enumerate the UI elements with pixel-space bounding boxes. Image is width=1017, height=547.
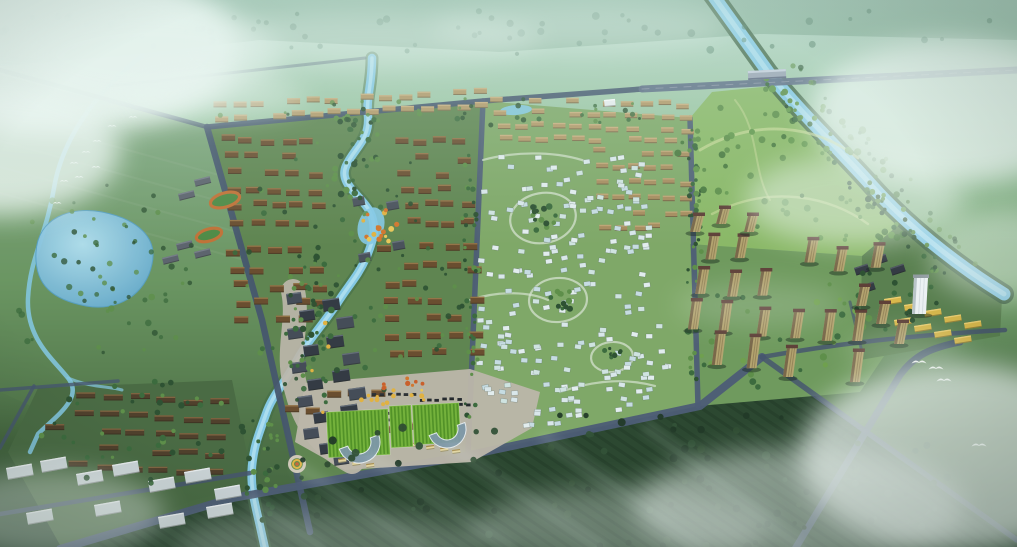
aerial-rendering-stage (0, 0, 1017, 547)
aerial-rendering-scene (0, 0, 1017, 547)
vignette-overlay (0, 0, 1017, 547)
